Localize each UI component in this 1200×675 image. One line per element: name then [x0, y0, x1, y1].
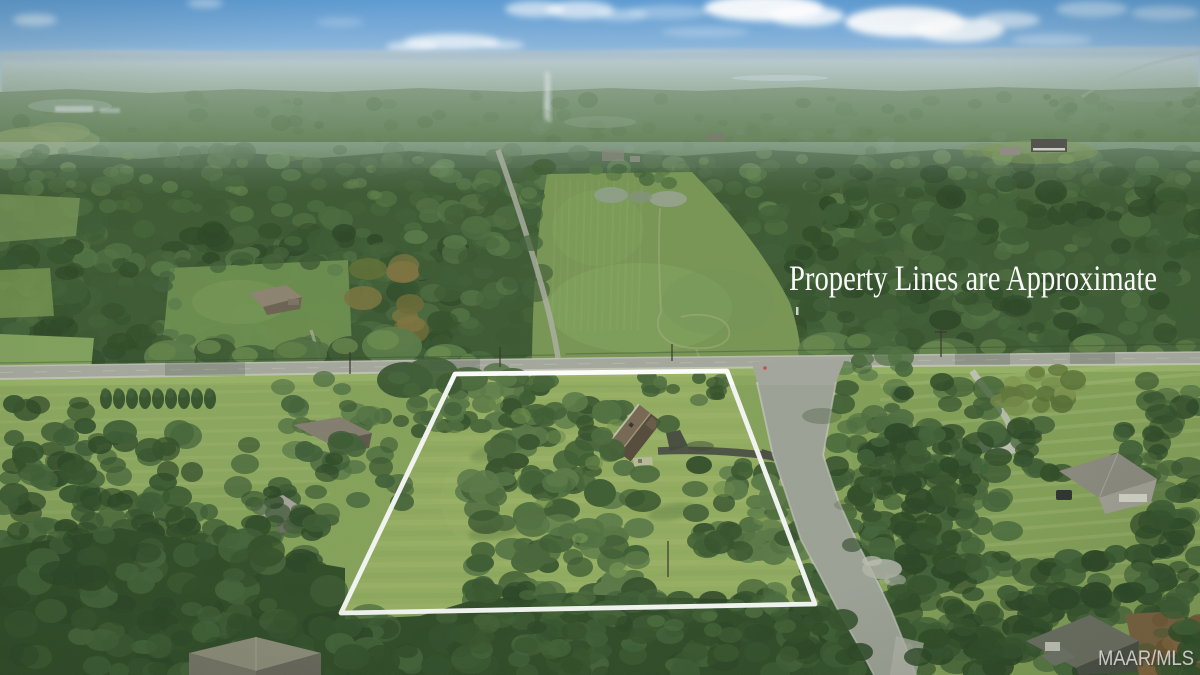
svg-text:MAAR/MLS: MAAR/MLS — [1098, 647, 1194, 670]
svg-text:Property Lines are Approximate: Property Lines are Approximate — [789, 258, 1157, 298]
